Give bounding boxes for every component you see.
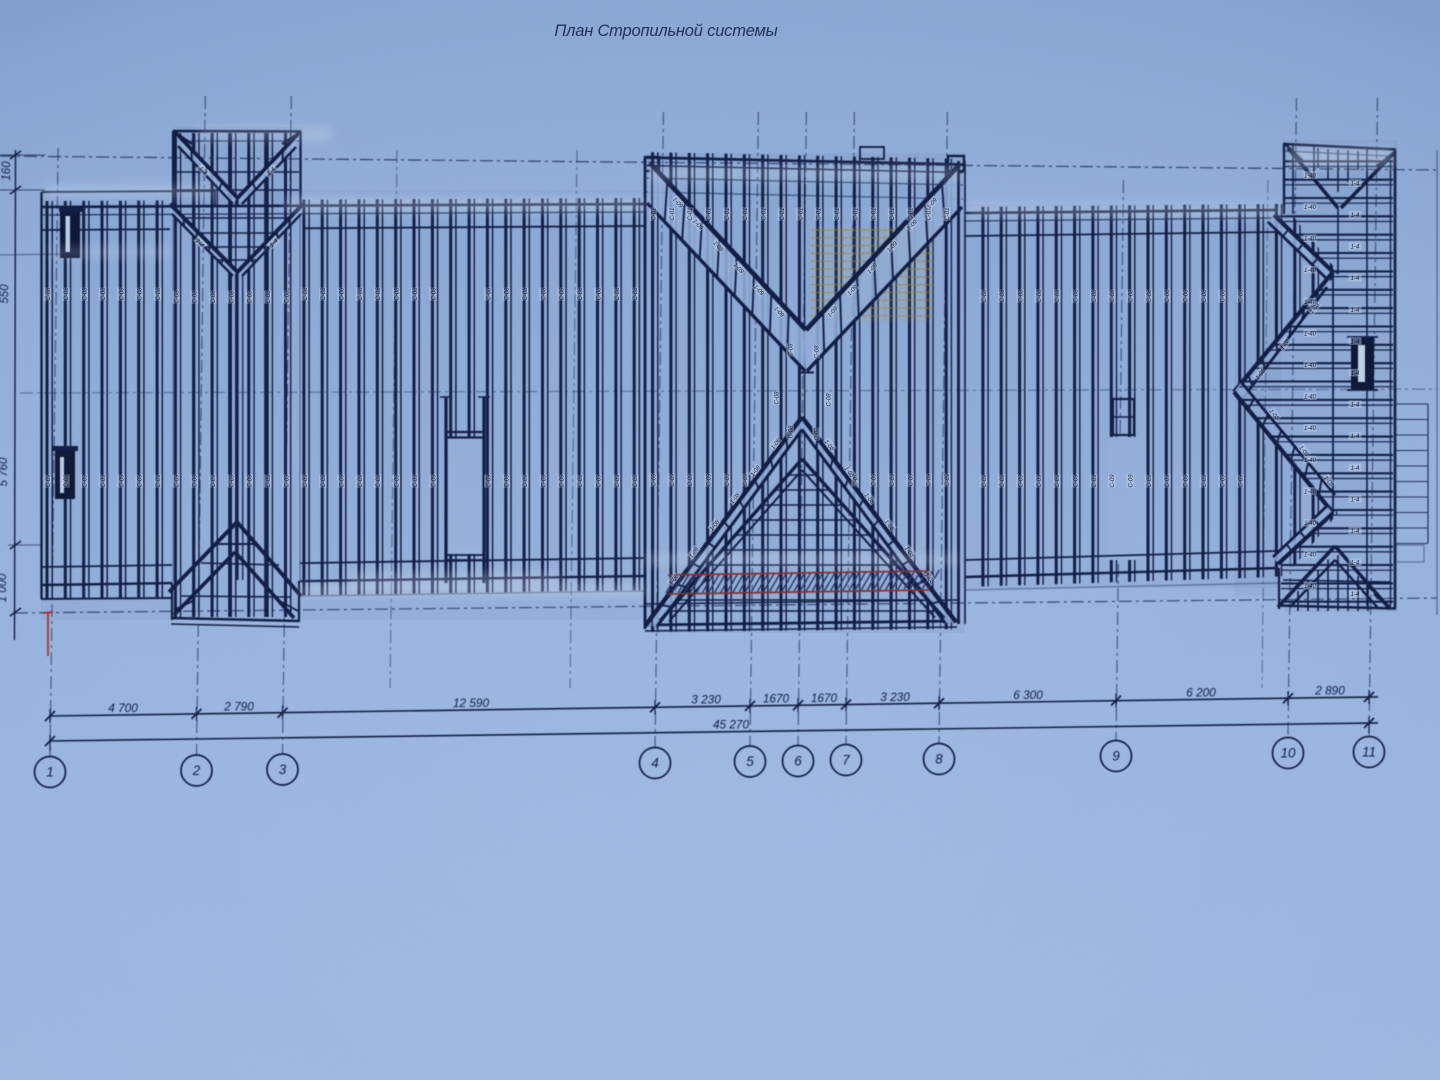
svg-text:План Стропильной системы: План Стропильной системы — [554, 22, 777, 40]
